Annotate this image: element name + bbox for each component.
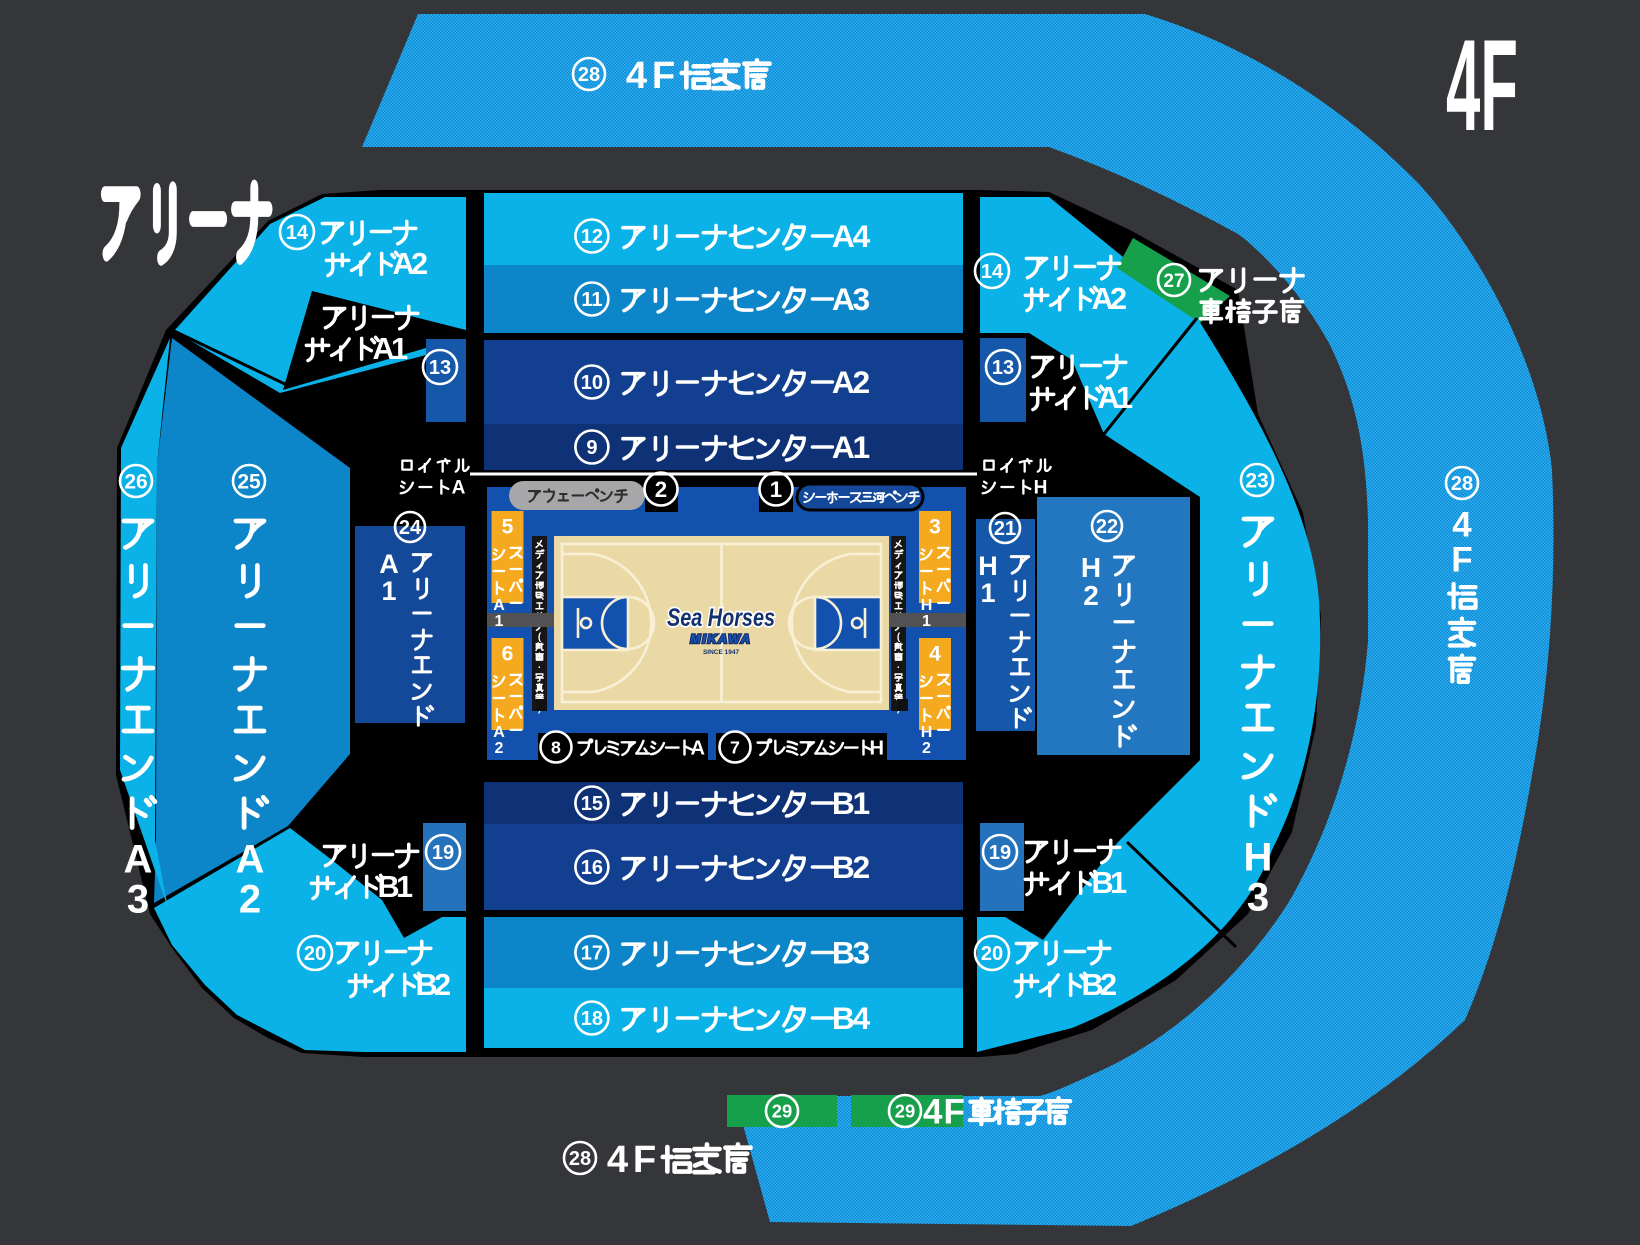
svg-text:13: 13 — [992, 357, 1014, 379]
svg-text:1: 1 — [853, 785, 871, 821]
svg-text:B: B — [832, 785, 855, 821]
svg-text:27: 27 — [1163, 271, 1184, 292]
svg-text:28: 28 — [578, 64, 600, 86]
svg-text:29: 29 — [772, 1101, 792, 1122]
svg-text:B: B — [832, 1000, 855, 1036]
svg-text:1: 1 — [396, 869, 413, 904]
svg-text:1: 1 — [853, 429, 871, 465]
svg-text:1: 1 — [770, 477, 782, 502]
svg-text:9: 9 — [586, 437, 597, 459]
svg-text:22: 22 — [1096, 516, 1118, 538]
svg-text:14: 14 — [286, 222, 309, 244]
svg-text:SINCE 1947: SINCE 1947 — [703, 649, 740, 656]
svg-text:2: 2 — [922, 740, 931, 757]
svg-text:20: 20 — [304, 943, 326, 965]
svg-text:A: A — [832, 218, 855, 254]
svg-text:F: F — [1451, 541, 1472, 580]
svg-text:10: 10 — [581, 372, 603, 394]
svg-text:4: 4 — [1452, 506, 1472, 545]
svg-text:2: 2 — [1100, 967, 1117, 1002]
svg-text:H: H — [921, 597, 933, 614]
svg-text:MIKAWA: MIKAWA — [690, 632, 751, 646]
svg-text:A: A — [832, 429, 855, 465]
svg-text:H: H — [921, 724, 933, 741]
svg-text:1: 1 — [495, 613, 504, 630]
svg-text:19: 19 — [432, 842, 454, 864]
svg-text:20: 20 — [981, 943, 1003, 965]
svg-text:H: H — [978, 551, 998, 581]
svg-text:A: A — [690, 737, 705, 759]
svg-text:A: A — [379, 549, 399, 579]
svg-text:A: A — [832, 281, 855, 317]
svg-text:A: A — [236, 837, 265, 881]
svg-text:3: 3 — [1247, 875, 1269, 919]
svg-text:A: A — [124, 837, 153, 881]
svg-text:18: 18 — [581, 1008, 603, 1030]
svg-text:6: 6 — [502, 643, 514, 666]
svg-text:1: 1 — [980, 578, 995, 608]
svg-text:3: 3 — [127, 877, 149, 921]
svg-text:2: 2 — [1083, 580, 1099, 611]
svg-text:H: H — [1244, 835, 1273, 879]
svg-text:19: 19 — [989, 842, 1011, 864]
svg-text:2: 2 — [1110, 281, 1127, 316]
svg-text:H: H — [1034, 478, 1048, 499]
svg-text:3: 3 — [853, 281, 871, 317]
svg-text:21: 21 — [994, 518, 1016, 540]
svg-text:2: 2 — [495, 740, 504, 757]
svg-text:4: 4 — [929, 643, 941, 666]
svg-text:3: 3 — [929, 516, 941, 539]
svg-text:2: 2 — [411, 246, 428, 281]
svg-text:7: 7 — [730, 737, 740, 757]
svg-text:17: 17 — [581, 943, 603, 965]
svg-text:26: 26 — [124, 471, 147, 494]
svg-text:24: 24 — [399, 517, 422, 539]
svg-text:4: 4 — [853, 218, 871, 254]
svg-text:B: B — [832, 849, 855, 885]
svg-text:1: 1 — [922, 613, 931, 630]
svg-text:F: F — [633, 1138, 656, 1181]
svg-text:H: H — [869, 737, 884, 759]
svg-text:F: F — [652, 54, 675, 97]
svg-text:28: 28 — [1451, 473, 1473, 495]
svg-text:B: B — [832, 934, 855, 970]
svg-text:25: 25 — [237, 471, 261, 494]
svg-text:4F: 4F — [1446, 12, 1518, 158]
svg-text:1: 1 — [1110, 865, 1127, 900]
svg-text:A: A — [493, 597, 505, 614]
svg-text:13: 13 — [429, 357, 451, 379]
svg-text:14: 14 — [981, 261, 1004, 283]
svg-text:·: · — [897, 663, 900, 674]
svg-text:H: H — [1081, 552, 1101, 583]
svg-text:1: 1 — [381, 576, 396, 606]
svg-text:Sea Horses: Sea Horses — [667, 604, 775, 632]
svg-text:4: 4 — [923, 1092, 943, 1131]
svg-text:F: F — [944, 1092, 965, 1131]
svg-text:A: A — [493, 724, 505, 741]
svg-text:2: 2 — [853, 849, 871, 885]
svg-text:1: 1 — [391, 331, 408, 366]
svg-text:3: 3 — [853, 934, 871, 970]
svg-text:·: · — [538, 663, 541, 674]
svg-text:2: 2 — [239, 877, 261, 921]
svg-text:5: 5 — [502, 516, 514, 539]
svg-text:2: 2 — [853, 364, 871, 400]
svg-text:28: 28 — [569, 1148, 591, 1170]
svg-text:8: 8 — [551, 737, 561, 757]
svg-text:11: 11 — [581, 289, 602, 311]
svg-text:4: 4 — [607, 1138, 629, 1181]
svg-text:A: A — [452, 478, 466, 499]
svg-text:16: 16 — [581, 857, 603, 879]
svg-text:15: 15 — [581, 793, 603, 815]
svg-text:2: 2 — [434, 967, 451, 1002]
svg-text:4: 4 — [626, 54, 648, 97]
svg-text:29: 29 — [895, 1101, 915, 1122]
svg-text:4: 4 — [853, 1000, 871, 1036]
svg-text:2: 2 — [655, 477, 667, 502]
svg-text:A: A — [832, 364, 855, 400]
svg-text:23: 23 — [1245, 470, 1268, 493]
svg-text:1: 1 — [1116, 380, 1133, 415]
svg-text:12: 12 — [581, 226, 603, 248]
